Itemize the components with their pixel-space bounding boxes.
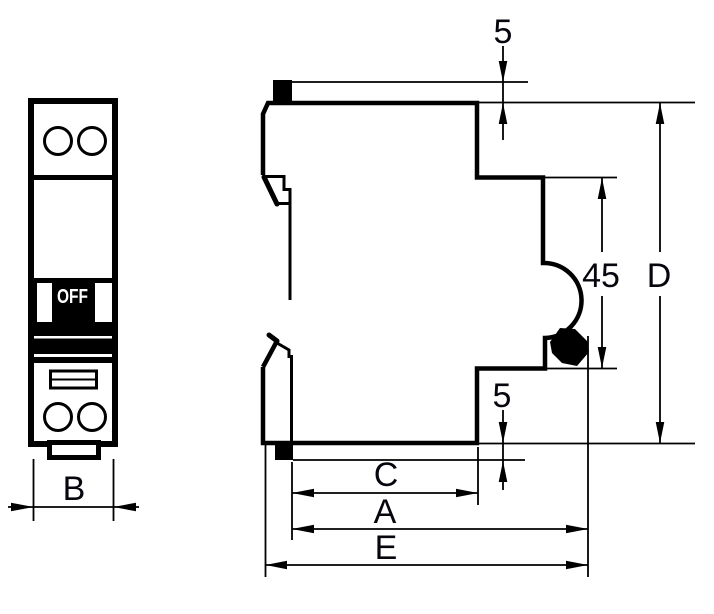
- dim-label-b: B: [63, 470, 86, 508]
- front-stripe-2: [34, 357, 112, 363]
- dim-label-d: D: [647, 257, 672, 295]
- dim-label-c: C: [374, 456, 399, 494]
- front-stripe-1: [34, 339, 112, 355]
- drawing-canvas: OFF B: [0, 0, 714, 614]
- technical-drawing: OFF B: [0, 0, 714, 614]
- toggle-rail-left: [37, 283, 52, 322]
- dim-label-e: E: [375, 529, 398, 567]
- dim-label-a: A: [374, 493, 397, 531]
- din-clip-tab: [50, 443, 99, 458]
- front-body-outline: [31, 101, 115, 444]
- dim-label-top-5: 5: [494, 13, 513, 51]
- side-terminal-bottom: [275, 444, 293, 460]
- off-switch-label: OFF: [57, 286, 88, 308]
- side-terminal-top: [273, 80, 292, 103]
- dim-label-bottom-5: 5: [493, 377, 512, 415]
- front-view: OFF: [31, 101, 115, 458]
- dim-label-45: 45: [582, 257, 620, 295]
- toggle-rail-right: [95, 283, 112, 322]
